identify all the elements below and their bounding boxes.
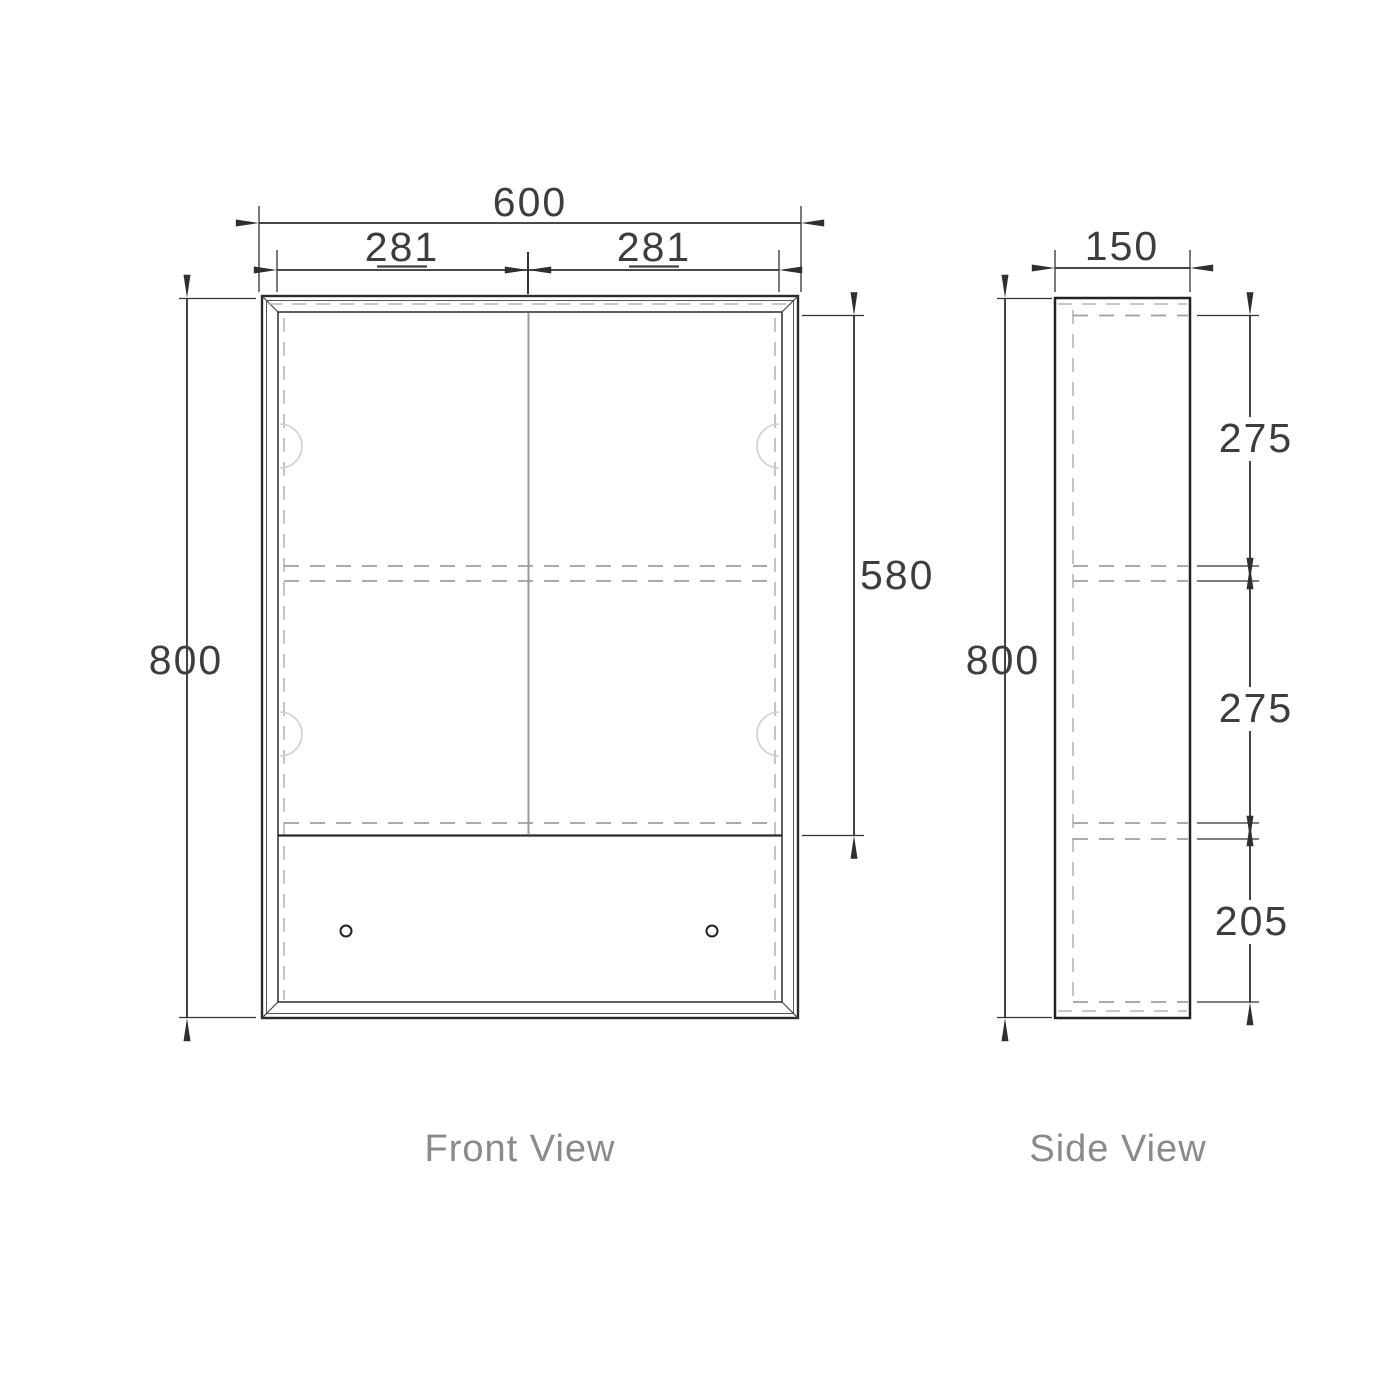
side-height-dimension: 800: [966, 298, 1052, 1018]
side-height-dim-text: 800: [966, 637, 1040, 683]
side-shelf-lines: [1073, 316, 1188, 1003]
side-cabinet-body: [1055, 298, 1190, 1018]
front-height-dim-text: 800: [149, 637, 223, 683]
front-view-label: Front View: [425, 1128, 616, 1170]
drawing-canvas: 600 281 281 800 580 Front View: [0, 0, 1400, 1400]
side-section-bottom-dim-text: 205: [1215, 898, 1289, 944]
front-door-width-dimensions: 281 281: [277, 224, 779, 294]
front-door-height-dimension: 580: [802, 316, 934, 836]
front-hidden-lines: [268, 304, 792, 1000]
front-door-height-dim-text: 580: [860, 552, 934, 598]
technical-drawing: 600 281 281 800 580 Front View: [0, 0, 1400, 1400]
side-section-dimensions: 275 275 205: [1197, 316, 1293, 1003]
side-view-drawing: 150 800 275 275 205 Side View: [966, 223, 1293, 1170]
front-width-dim-text: 600: [493, 179, 567, 225]
front-door-right-dim-text: 281: [617, 224, 691, 270]
front-door-left-dim-text: 281: [365, 224, 439, 270]
front-view-drawing: 600 281 281 800 580 Front View: [149, 179, 935, 1170]
side-section-middle-dim-text: 275: [1219, 685, 1293, 731]
side-depth-dimension: 150: [1055, 223, 1190, 292]
front-mounting-holes: [341, 926, 718, 937]
front-width-dimension: 600: [259, 179, 801, 292]
side-hidden-lines: [1058, 304, 1187, 1011]
front-cabinet-frame: [262, 296, 798, 1018]
side-depth-dim-text: 150: [1085, 223, 1159, 269]
side-section-top-dim-text: 275: [1219, 415, 1293, 461]
front-height-dimension: 800: [149, 298, 256, 1018]
side-view-label: Side View: [1029, 1128, 1206, 1170]
